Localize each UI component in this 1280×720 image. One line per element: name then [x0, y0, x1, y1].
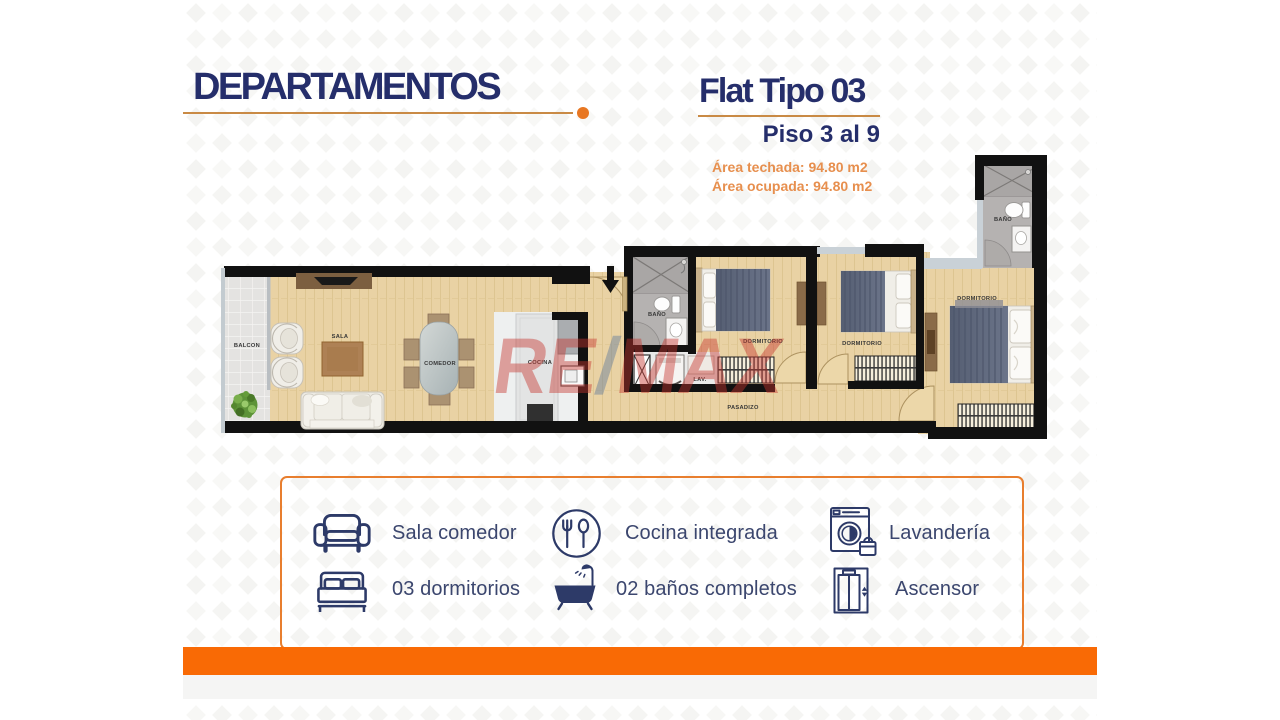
- svg-text:SALA: SALA: [332, 334, 349, 340]
- svg-text:BALCON: BALCON: [234, 343, 260, 349]
- svg-text:BAÑO: BAÑO: [648, 311, 666, 318]
- svg-text:COMEDOR: COMEDOR: [424, 361, 456, 367]
- svg-text:DORMITORIO: DORMITORIO: [842, 341, 882, 347]
- svg-text:BAÑO: BAÑO: [994, 216, 1012, 223]
- svg-text:DORMITORIO: DORMITORIO: [957, 296, 997, 302]
- svg-text:RE/MAX: RE/MAX: [488, 321, 788, 410]
